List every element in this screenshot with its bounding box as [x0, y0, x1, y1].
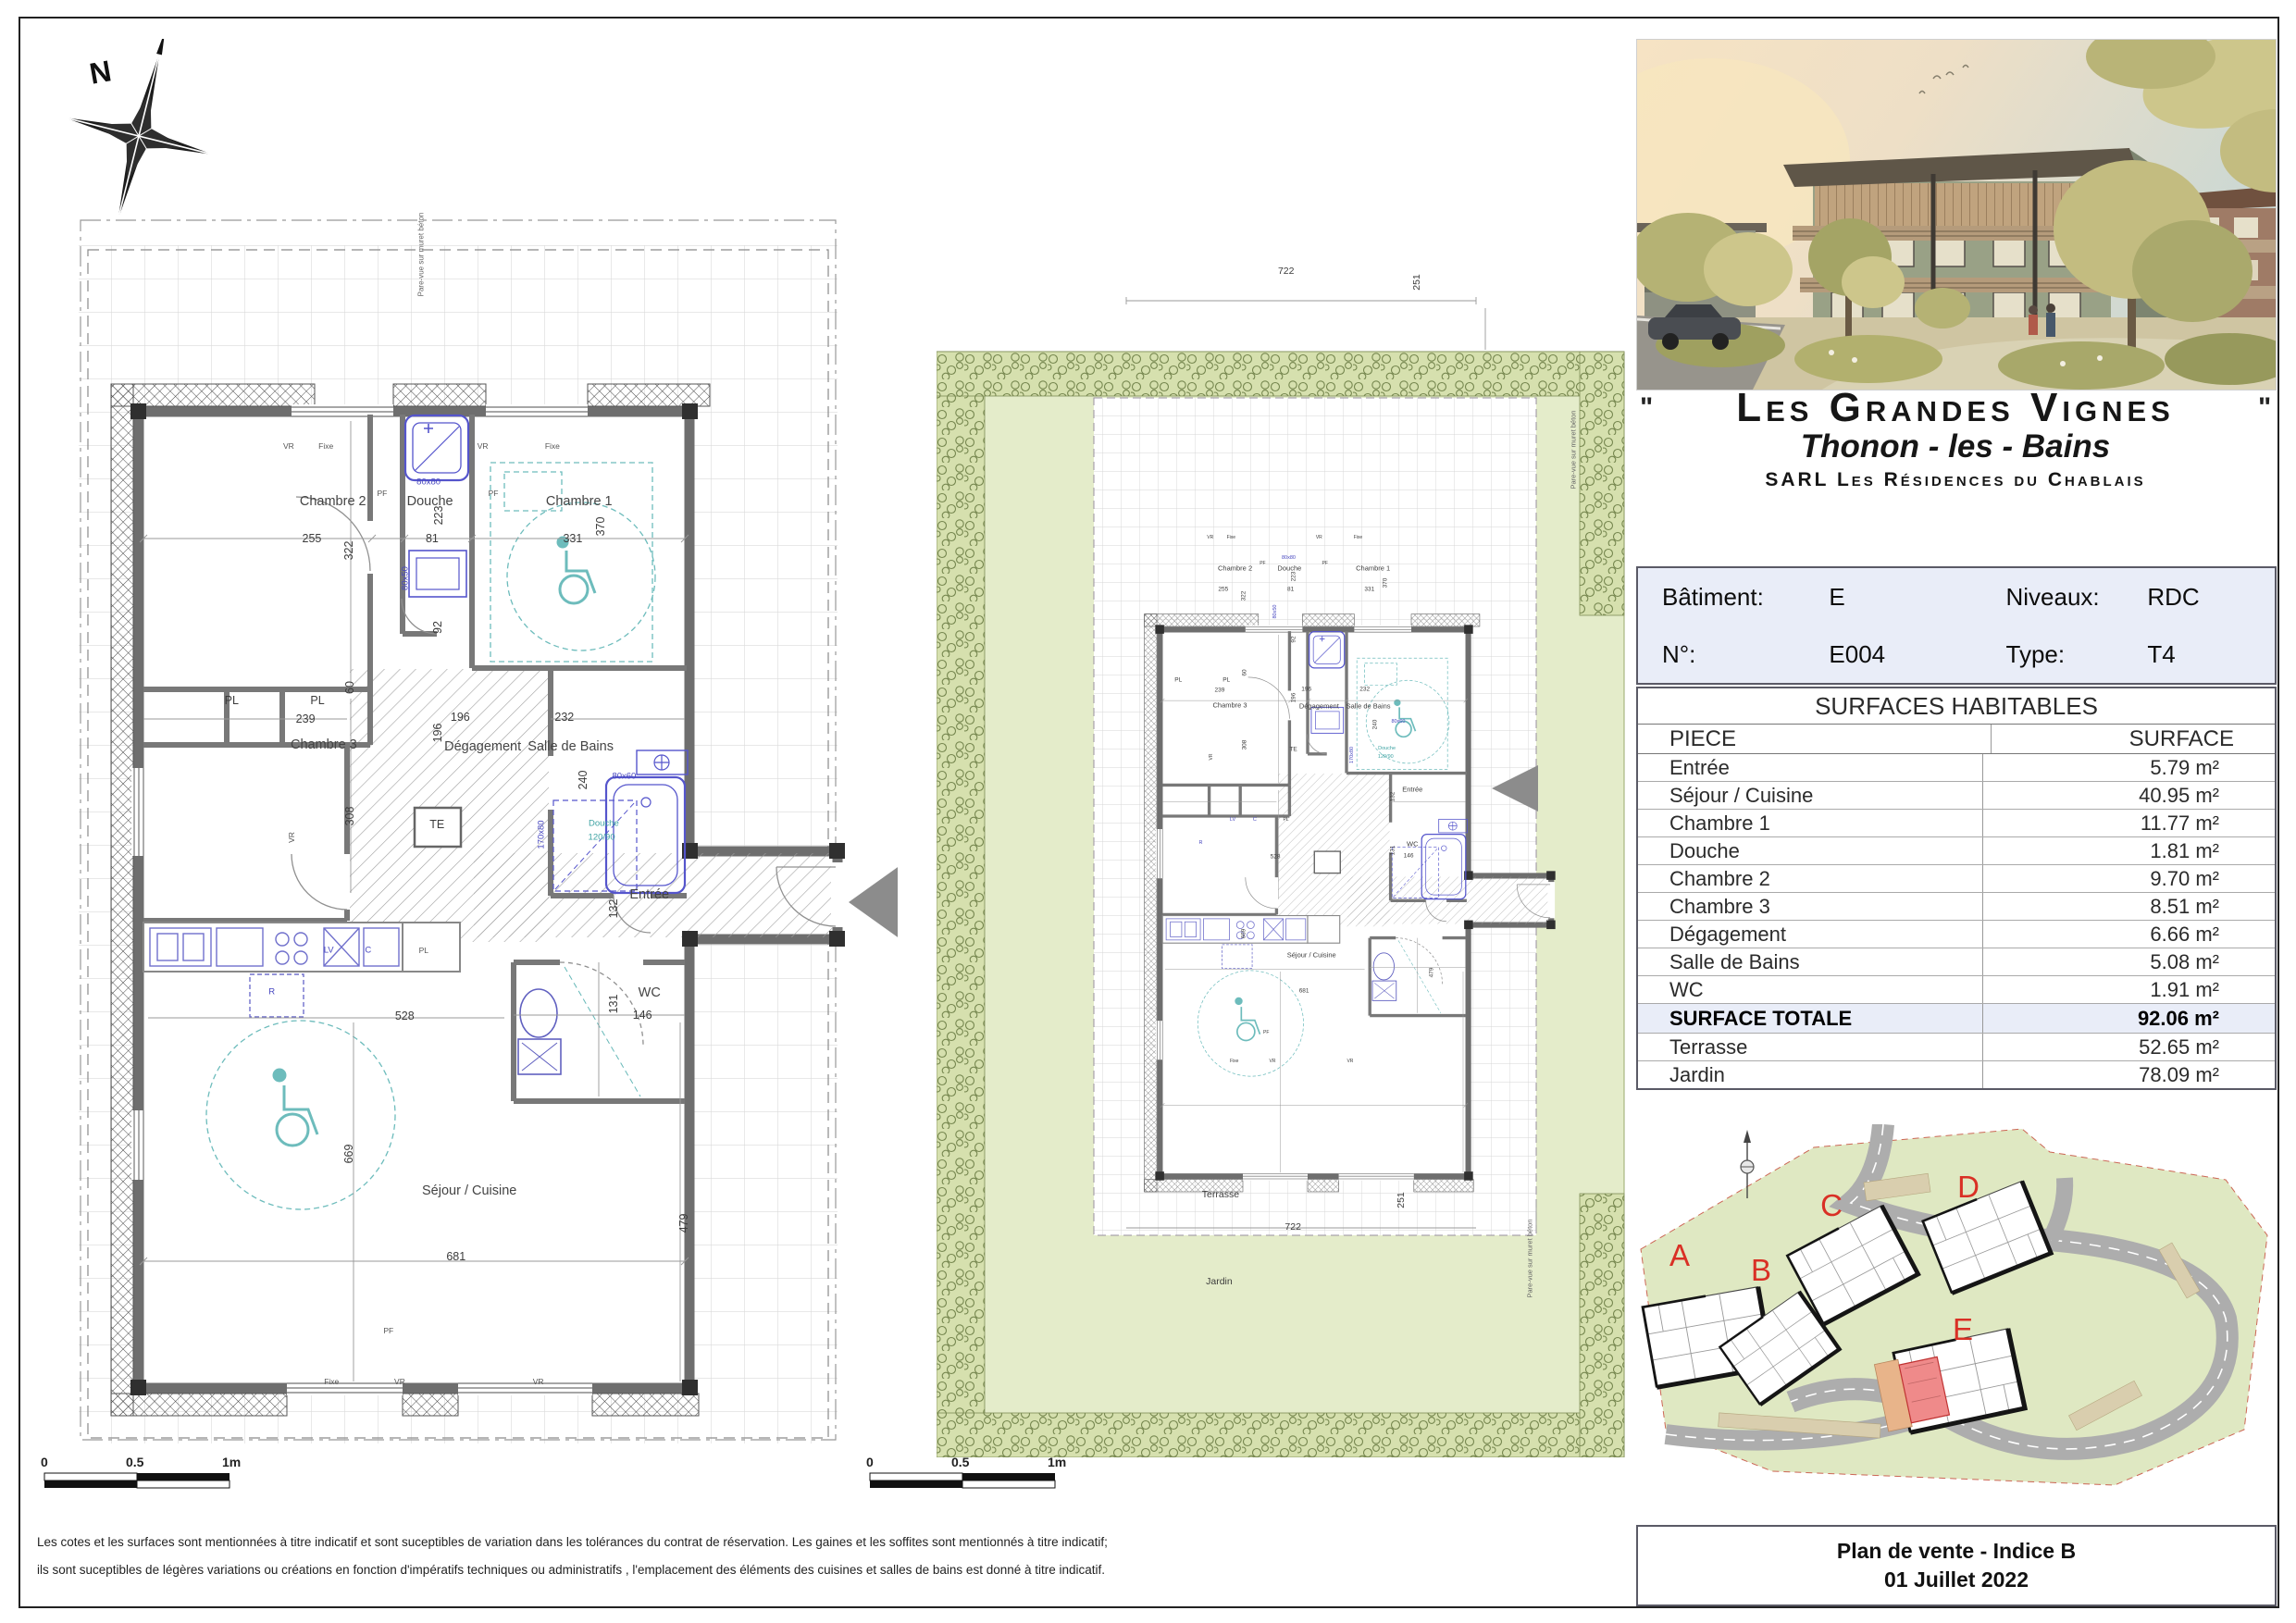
surface-row: Douche1.81 m² — [1638, 837, 2275, 865]
surfaces-table: SURFACES HABITABLES PIECE SURFACE Entrée… — [1636, 687, 2277, 1090]
city-subtitle: Thonon - les - Bains — [1636, 429, 2275, 465]
surfaces-header-row: PIECE SURFACE — [1638, 725, 2275, 754]
surface-row: Séjour / Cuisine40.95 m² — [1638, 782, 2275, 810]
surface-cell: 1.91 m² — [1983, 978, 2275, 1002]
surface-row: WC1.91 m² — [1638, 976, 2275, 1004]
surfaces-body: Entrée5.79 m²Séjour / Cuisine40.95 m²Cha… — [1638, 754, 2275, 1088]
floorplan-garden: Chambre 2255322Douche8122380x80Chambre 1… — [937, 213, 1626, 1457]
surface-row: Salle de Bains5.08 m² — [1638, 948, 2275, 976]
piece-cell: Chambre 3 — [1638, 893, 1983, 920]
building-rendering-image — [1636, 39, 2277, 390]
residence-title: Les Grandes Vignes — [1636, 387, 2275, 429]
batiment-value: E — [1829, 583, 1981, 612]
surface-cell: 9.70 m² — [1983, 867, 2275, 891]
piece-cell: Douche — [1638, 837, 1983, 864]
disclaimer-line-2: ils sont suceptibles de légères variatio… — [37, 1556, 1592, 1584]
compass-rose: N — [51, 39, 227, 224]
surface-row: Chambre 111.77 m² — [1638, 810, 2275, 837]
piece-cell: Séjour / Cuisine — [1638, 782, 1983, 809]
scale-one: 1m — [1048, 1455, 1066, 1469]
floorplan-large-drawing — [79, 213, 898, 1443]
piece-cell: Dégagement — [1638, 921, 1983, 948]
surface-row: Chambre 29.70 m² — [1638, 865, 2275, 893]
scale-half: 0.5 — [951, 1455, 969, 1469]
scale-zero: 0 — [866, 1455, 874, 1469]
footer-date: 01 Juillet 2022 — [1638, 1567, 2275, 1592]
piece-cell: Entrée — [1638, 754, 1983, 781]
scale-zero: 0 — [41, 1455, 48, 1469]
surface-cell: 52.65 m² — [1983, 1035, 2275, 1059]
site-plan-drawing — [1633, 1124, 2277, 1496]
surface-cell: 8.51 m² — [1983, 895, 2275, 919]
numero-label: N°: — [1638, 640, 1829, 669]
batiment-label: Bâtiment: — [1638, 583, 1829, 612]
scale-half: 0.5 — [126, 1455, 143, 1469]
surface-cell: 5.79 m² — [1983, 756, 2275, 780]
company-name: SARL Les Résidences du Chablais — [1636, 469, 2275, 491]
surface-cell: 78.09 m² — [1983, 1063, 2275, 1087]
piece-cell: Terrasse — [1638, 1034, 1983, 1060]
col-piece: PIECE — [1638, 725, 1992, 753]
surface-row: Jardin78.09 m² — [1638, 1061, 2275, 1088]
numero-value: E004 — [1829, 640, 1981, 669]
surface-cell: 6.66 m² — [1983, 923, 2275, 947]
unit-info-table: Bâtiment: E Niveaux: RDC N°: E004 Type: … — [1636, 566, 2277, 685]
plan-de-vente-sheet: N — [0, 0, 2296, 1623]
title-block: Les Grandes Vignes Thonon - les - Bains … — [1636, 387, 2275, 491]
surface-row: Entrée5.79 m² — [1638, 754, 2275, 782]
scale-one: 1m — [222, 1455, 241, 1469]
surface-cell: 11.77 m² — [1983, 811, 2275, 836]
compass-star-icon — [51, 39, 227, 224]
surface-cell: 92.06 m² — [1983, 1007, 2275, 1031]
surface-row: SURFACE TOTALE92.06 m² — [1638, 1004, 2275, 1034]
niveaux-label: Niveaux: — [1982, 583, 2148, 612]
surface-cell: 40.95 m² — [1983, 784, 2275, 808]
piece-cell: SURFACE TOTALE — [1638, 1004, 1983, 1033]
piece-cell: Salle de Bains — [1638, 948, 1983, 975]
scalebar-icon — [33, 1471, 265, 1508]
floorplan-large: Chambre 2255322Douche8122380x80Chambre 1… — [79, 213, 898, 1443]
surface-cell: 5.08 m² — [1983, 950, 2275, 974]
footer-plan-title: Plan de vente - Indice B — [1638, 1539, 2275, 1564]
disclaimer-line-1: Les cotes et les surfaces sont mentionné… — [37, 1529, 1592, 1556]
surfaces-title: SURFACES HABITABLES — [1638, 688, 2275, 725]
niveaux-value: RDC — [2147, 583, 2275, 612]
col-surface: SURFACE — [1992, 726, 2275, 752]
scalebar-left: 0 0.5 1m — [33, 1455, 265, 1508]
footer-box: Plan de vente - Indice B 01 Juillet 2022 — [1636, 1525, 2277, 1606]
floorplan-garden-drawing — [937, 213, 1626, 1457]
scalebar-icon — [859, 1471, 1090, 1508]
type-value: T4 — [2147, 640, 2275, 669]
disclaimer: Les cotes et les surfaces sont mentionné… — [37, 1529, 1592, 1584]
scalebar-middle: 0 0.5 1m — [859, 1455, 1090, 1508]
site-plan: ABCDE — [1633, 1124, 2277, 1496]
piece-cell: Chambre 1 — [1638, 810, 1983, 836]
surface-cell: 1.81 m² — [1983, 839, 2275, 863]
piece-cell: WC — [1638, 976, 1983, 1003]
type-label: Type: — [1982, 640, 2148, 669]
surface-row: Terrasse52.65 m² — [1638, 1034, 2275, 1061]
piece-cell: Chambre 2 — [1638, 865, 1983, 892]
piece-cell: Jardin — [1638, 1061, 1983, 1088]
surface-row: Dégagement6.66 m² — [1638, 921, 2275, 948]
surface-row: Chambre 38.51 m² — [1638, 893, 2275, 921]
entrance-arrow-icon — [849, 861, 898, 944]
